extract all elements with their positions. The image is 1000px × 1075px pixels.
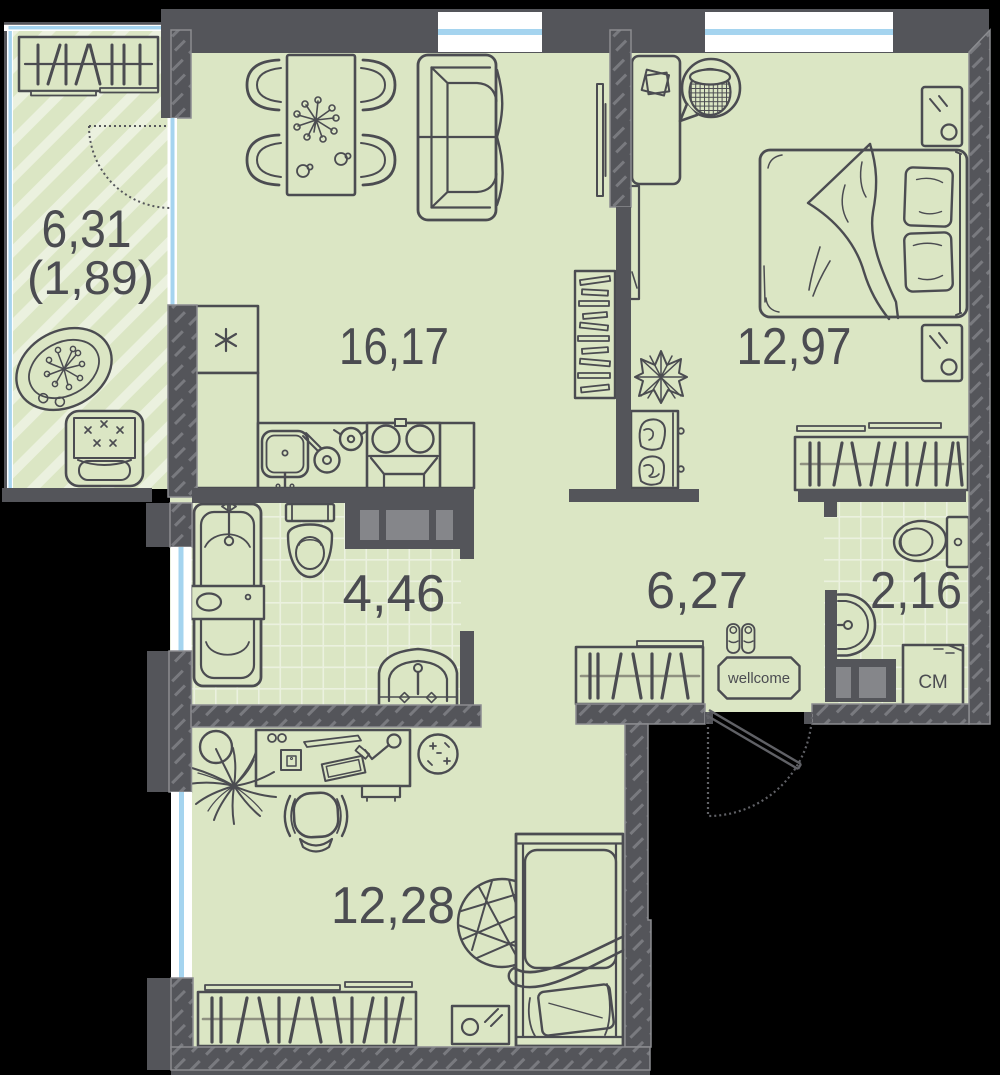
svg-text:16,17: 16,17: [339, 318, 449, 376]
svg-text:СМ: СМ: [918, 672, 947, 693]
svg-text:wellcome: wellcome: [727, 671, 790, 687]
svg-text:12,28: 12,28: [331, 877, 455, 935]
svg-text:2,16: 2,16: [870, 562, 962, 620]
svg-text:(1,89): (1,89): [27, 251, 154, 304]
svg-text:12,97: 12,97: [737, 318, 852, 376]
svg-text:6,27: 6,27: [646, 562, 748, 620]
svg-text:4,46: 4,46: [343, 565, 446, 623]
